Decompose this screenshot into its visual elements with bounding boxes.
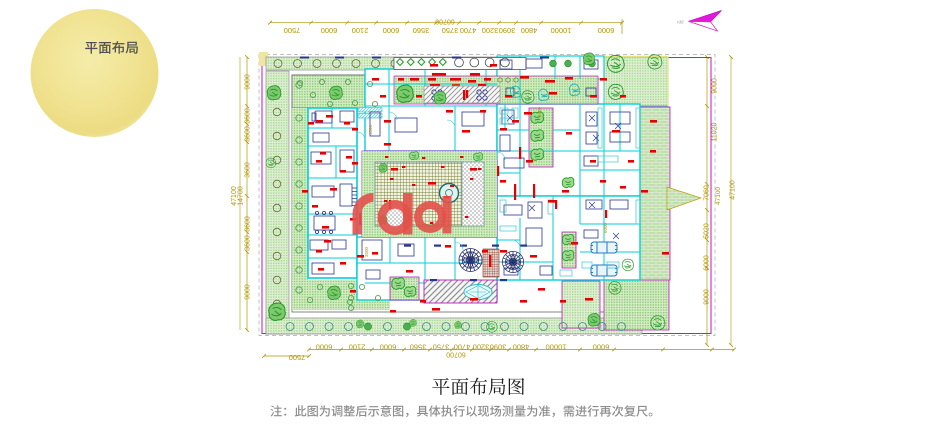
svg-text:3600: 3600 [245, 216, 252, 232]
svg-text:3750: 3750 [442, 26, 459, 35]
svg-text:4800: 4800 [513, 342, 530, 351]
svg-text:3750: 3750 [433, 342, 450, 351]
svg-text:2100: 2100 [349, 342, 366, 351]
svg-text:6000: 6000 [603, 222, 608, 233]
svg-text:60700: 60700 [435, 18, 455, 25]
svg-text:6000: 6000 [593, 342, 610, 351]
svg-text:10000: 10000 [546, 342, 567, 351]
svg-text:3200: 3200 [473, 342, 490, 351]
svg-text:3500: 3500 [364, 246, 369, 257]
svg-text:14700: 14700 [238, 186, 245, 206]
svg-text:10000: 10000 [551, 26, 572, 35]
svg-text:4700: 4700 [460, 26, 477, 35]
svg-text:3600: 3600 [245, 108, 252, 124]
svg-text:47100: 47100 [730, 180, 737, 200]
svg-text:6000: 6000 [316, 342, 333, 351]
svg-text:7060: 7060 [704, 185, 711, 201]
svg-text:4800: 4800 [521, 26, 538, 35]
svg-text:1800: 1800 [368, 124, 373, 135]
svg-text:3090: 3090 [499, 26, 516, 35]
svg-text:2400: 2400 [537, 106, 542, 117]
svg-text:3600: 3600 [245, 126, 252, 142]
svg-text:3090: 3090 [490, 342, 507, 351]
svg-text:4700: 4700 [454, 342, 471, 351]
svg-text:60700: 60700 [446, 350, 466, 357]
svg-text:47100: 47100 [231, 186, 238, 206]
svg-text:6000: 6000 [704, 255, 711, 271]
svg-text:9000: 9000 [245, 74, 252, 90]
svg-text:6000: 6000 [383, 26, 400, 35]
svg-text:3600: 3600 [245, 235, 252, 251]
svg-text:9000: 9000 [704, 289, 711, 305]
svg-text:6000: 6000 [380, 342, 397, 351]
svg-text:47100: 47100 [715, 187, 722, 205]
svg-text:3200: 3200 [482, 26, 499, 35]
svg-text:5020: 5020 [704, 223, 711, 239]
svg-text:2100: 2100 [352, 26, 369, 35]
svg-text:6000: 6000 [598, 26, 615, 35]
svg-text:6000: 6000 [321, 26, 338, 35]
svg-text:3600: 3600 [245, 162, 252, 178]
svg-text:3560: 3560 [410, 342, 427, 351]
svg-text:9000: 9000 [245, 284, 252, 300]
svg-text:7500: 7500 [289, 353, 306, 362]
svg-text:3560: 3560 [413, 26, 430, 35]
svg-text:rdd: rdd [677, 20, 684, 25]
svg-text:7500: 7500 [284, 26, 301, 35]
